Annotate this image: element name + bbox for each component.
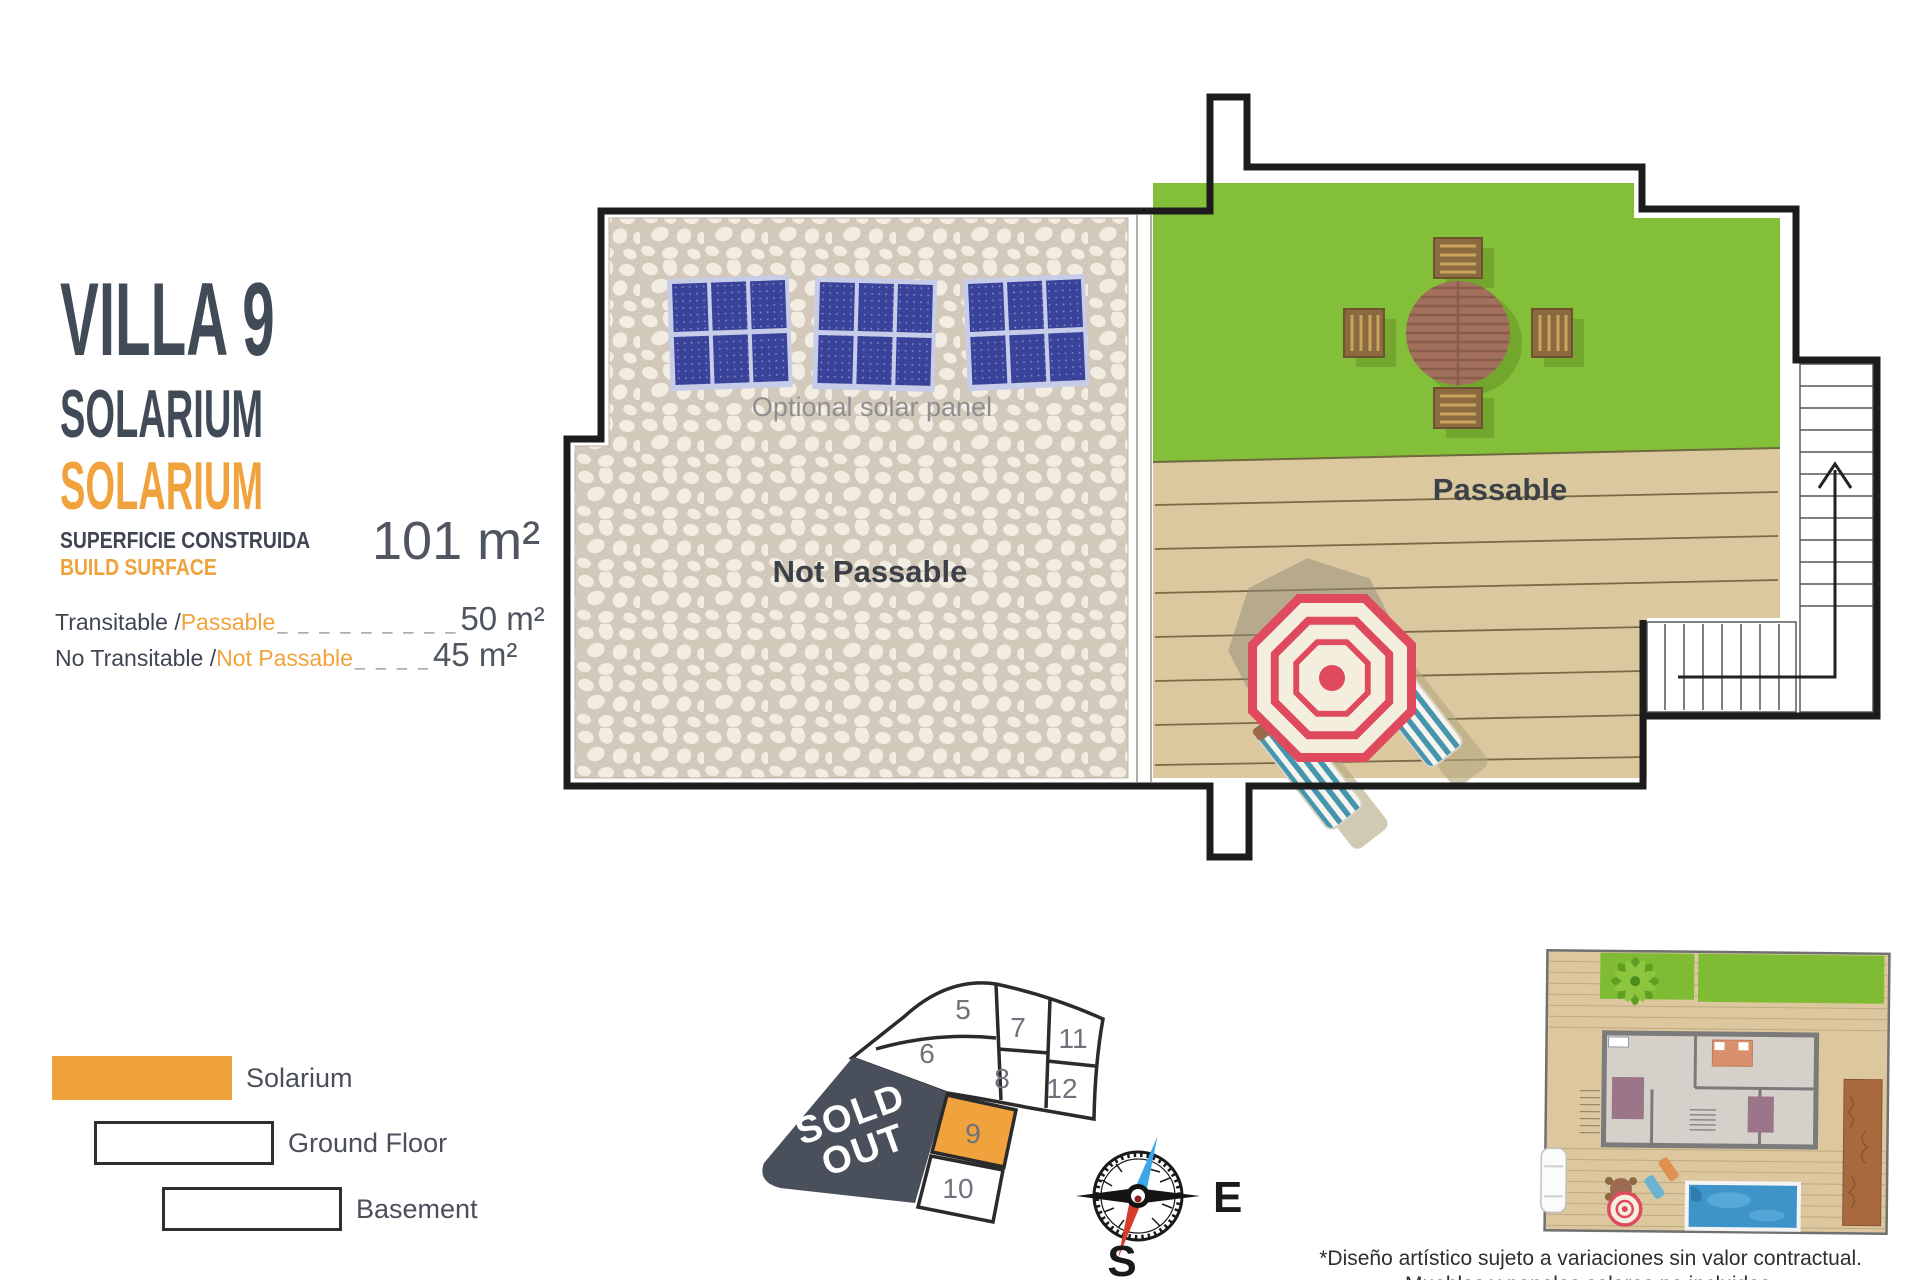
site-house bbox=[1603, 1033, 1816, 1147]
bed bbox=[1612, 1077, 1644, 1119]
solar-panel-note: Optional solar panel bbox=[752, 392, 992, 422]
solarium-floor-plan: Optional solar panel bbox=[0, 0, 1920, 1280]
plot-cell-11[interactable]: 11 bbox=[1058, 1023, 1087, 1054]
plot-cell-7[interactable]: 7 bbox=[1010, 1012, 1026, 1043]
brochure-page: VILLA 9 SOLARIUM SOLARIUM SUPERFICIE CON… bbox=[0, 0, 1920, 1280]
compass-south-label: S bbox=[1107, 1237, 1136, 1280]
bed bbox=[1748, 1096, 1774, 1132]
site-parasol bbox=[1605, 1177, 1642, 1225]
round-table bbox=[1406, 281, 1510, 385]
plot-cell-9-number: 9 bbox=[965, 1118, 981, 1149]
bathtub bbox=[1608, 1037, 1628, 1047]
plot-cell-6[interactable]: 6 bbox=[919, 1038, 935, 1069]
plot-map: SOLD OUT 5 7 11 6 8 12 9 10 bbox=[762, 983, 1103, 1222]
disclaimer-line-1: *Diseño artístico sujeto a variaciones s… bbox=[1319, 1246, 1862, 1272]
disclaimer: *Diseño artístico sujeto a variaciones s… bbox=[1319, 1246, 1862, 1280]
site-grass-right bbox=[1698, 954, 1884, 1004]
site-plan-thumbnail bbox=[1541, 950, 1890, 1234]
compass-rose: E S bbox=[1076, 1133, 1242, 1280]
site-pool bbox=[1687, 1183, 1799, 1230]
plot-cell-10-number: 10 bbox=[942, 1173, 973, 1204]
passable-label: Passable bbox=[1433, 472, 1567, 507]
not-passable-label: Not Passable bbox=[773, 554, 968, 589]
plot-cell-5[interactable]: 5 bbox=[955, 994, 971, 1025]
plan-area: Optional solar panel bbox=[567, 97, 1877, 857]
site-car bbox=[1541, 1148, 1567, 1212]
plot-cell-8[interactable]: 8 bbox=[994, 1063, 1010, 1094]
compass-east-label: E bbox=[1213, 1173, 1242, 1222]
disclaimer-line-2: Muebles y paneles solares no incluidos. bbox=[1319, 1272, 1862, 1280]
plot-cell-12[interactable]: 12 bbox=[1046, 1073, 1077, 1104]
